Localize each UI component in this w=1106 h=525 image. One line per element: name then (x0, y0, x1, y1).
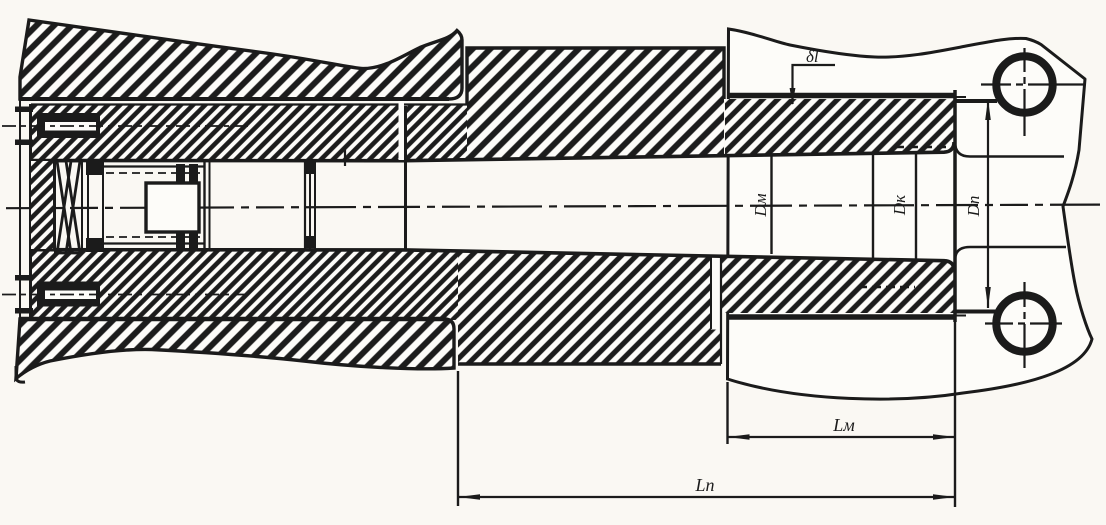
svg-text:Dп: Dп (964, 196, 983, 218)
svg-text:Dк: Dк (890, 194, 909, 216)
svg-text:Lп: Lп (694, 475, 714, 495)
svg-text:Dм: Dм (751, 193, 770, 217)
svg-text:Lм: Lм (832, 415, 855, 435)
svg-text:δl: δl (806, 47, 819, 66)
